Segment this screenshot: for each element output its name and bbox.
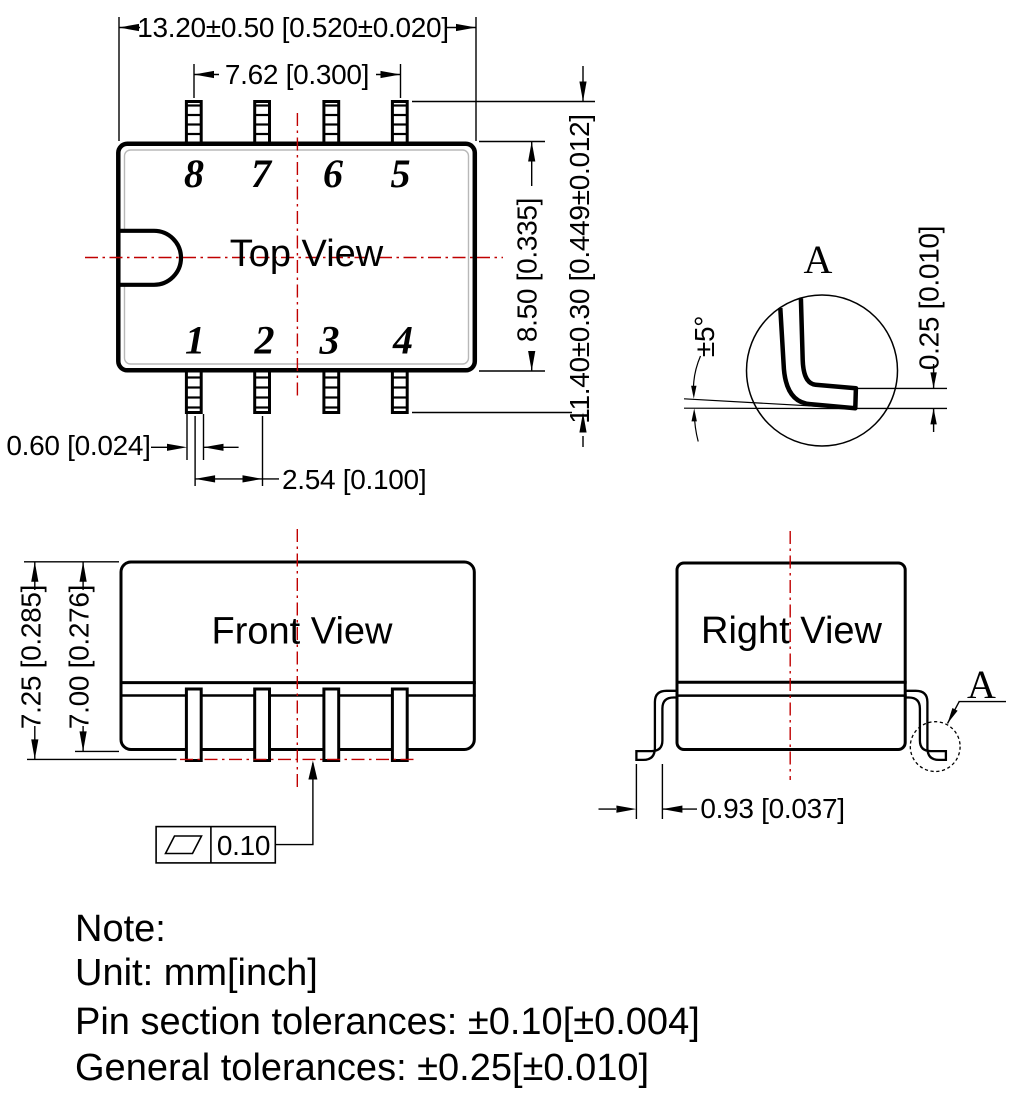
svg-text:A: A: [967, 662, 996, 707]
svg-text:Right View: Right View: [701, 610, 883, 652]
svg-text:8.50 [0.335]: 8.50 [0.335]: [512, 198, 543, 342]
svg-text:±5°: ±5°: [689, 316, 720, 357]
svg-text:General tolerances: ±0.25[±0.0: General tolerances: ±0.25[±0.010]: [75, 1047, 649, 1089]
svg-text:Top View: Top View: [230, 233, 384, 275]
svg-text:7.25 [0.285]: 7.25 [0.285]: [16, 585, 47, 729]
svg-text:0.93 [0.037]: 0.93 [0.037]: [700, 793, 844, 824]
svg-text:Note:: Note:: [75, 908, 166, 950]
svg-text:5: 5: [391, 151, 411, 196]
svg-text:4: 4: [392, 318, 413, 363]
svg-text:6: 6: [323, 151, 343, 196]
svg-text:Unit: mm[inch]: Unit: mm[inch]: [75, 952, 318, 994]
svg-text:Front View: Front View: [212, 611, 393, 653]
svg-text:13.20±0.50 [0.520±0.020]: 13.20±0.50 [0.520±0.020]: [137, 12, 449, 43]
svg-text:2: 2: [254, 318, 275, 363]
svg-text:7.00 [0.276]: 7.00 [0.276]: [64, 585, 95, 729]
svg-text:0.60 [0.024]: 0.60 [0.024]: [6, 430, 150, 461]
svg-text:1: 1: [185, 318, 205, 363]
svg-text:A: A: [804, 237, 833, 282]
svg-text:11.40±0.30 [0.449±0.012]: 11.40±0.30 [0.449±0.012]: [564, 114, 595, 424]
svg-text:8: 8: [184, 151, 204, 196]
svg-text:2.54 [0.100]: 2.54 [0.100]: [282, 464, 426, 495]
svg-text:7.62 [0.300]: 7.62 [0.300]: [225, 59, 369, 90]
svg-text:0.25 [0.010]: 0.25 [0.010]: [914, 226, 945, 370]
svg-text:3: 3: [319, 318, 340, 363]
svg-text:0.10: 0.10: [217, 830, 270, 861]
svg-text:Pin section tolerances: ±0.10[: Pin section tolerances: ±0.10[±0.004]: [75, 1001, 700, 1043]
svg-text:7: 7: [251, 151, 273, 196]
